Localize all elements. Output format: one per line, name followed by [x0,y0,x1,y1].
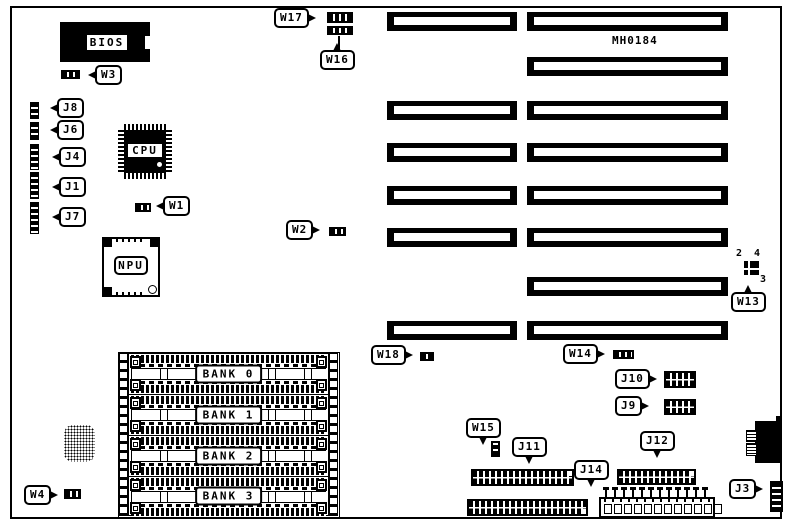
label-j11: J11 [512,437,547,457]
label-j14: J14 [574,460,609,480]
power-pin [702,487,708,497]
pointer-icon [587,479,595,487]
isa-slot-segment [527,101,728,120]
bios-chip-notch [145,36,150,49]
pointer-icon [479,437,487,445]
simm-latch-clip [316,379,327,391]
simm-latch-clip [316,479,327,491]
pointer-icon [50,126,58,134]
label-w3: W3 [95,65,122,85]
bank-edge-strip-left [119,353,128,516]
power-pin [630,487,636,497]
power-pin [612,487,618,497]
pointer-icon [405,351,413,359]
power-socket [664,504,672,514]
pointer-icon [333,43,341,51]
label-j1: J1 [59,177,86,197]
connector-j14 [467,499,588,516]
simm-latch-clip [316,356,327,368]
simm-latch-clip [130,356,141,368]
npu-label: NPU [114,256,148,275]
power-socket [684,504,692,514]
simm-latch-clip [316,461,327,473]
simm-pins [131,478,326,486]
jumper-w17 [327,12,353,23]
simm-pins [131,355,326,363]
jumper-w3 [61,70,80,79]
isa-slot-segment [527,277,728,296]
power-pin [639,487,645,497]
isa-slot-segment [387,12,517,31]
pointer-icon [52,183,60,191]
jumper-w18 [420,352,434,361]
simm-latch-clip [130,397,141,409]
keyboard-connector [755,421,782,463]
bank0-label: BANK 0 [195,365,263,384]
connector-j11 [471,469,574,486]
simm-pins [131,385,326,393]
label-w18: W18 [371,345,406,365]
header-j4 [30,144,39,170]
npu-socket: NPU [102,237,160,297]
label-w13: W13 [731,292,766,312]
label-j8: J8 [57,98,84,118]
power-pin [675,487,681,497]
npu-corner [104,239,112,247]
header-j1 [30,172,39,199]
npu-pin1-ring [148,285,157,294]
pointer-icon [653,450,661,458]
power-connector [599,487,715,518]
isa-slot-segment [527,186,728,205]
bios-chip-label: BIOS [87,35,127,50]
power-socket [634,504,642,514]
isa-slot-segment [527,12,728,31]
jumper-w2 [329,227,346,236]
power-socket [644,504,652,514]
isa-slot-segment [527,57,728,76]
simm-latch-clip [316,502,327,514]
motherboard-diagram: BIOS W3 J8 J6 J4 J1 J7 CPU W1 [0,0,791,529]
simm-bank-3: BANK 3 [128,476,329,516]
power-socket [674,504,682,514]
label-j12: J12 [640,431,675,451]
bios-chip: BIOS [60,22,150,62]
jumper-w4 [64,489,81,499]
simm-latch-clip [130,461,141,473]
cpu-chip: CPU [118,124,172,179]
jumper-w13-block [744,261,759,275]
cpu-pins-bottom [124,173,166,179]
isa-slot-segment [527,228,728,247]
jumper-w1 [135,203,151,212]
power-pin [621,487,627,497]
npu-ticks-top [116,239,146,242]
pointer-icon [744,285,752,293]
isa-slot-segment [387,101,517,120]
header-j6 [30,122,39,140]
simm-latch-clip [130,420,141,432]
simm-pins [131,467,326,475]
npu-corner [104,287,112,295]
bank3-label: BANK 3 [195,487,263,506]
label-w1: W1 [163,196,190,216]
pointer-icon [649,375,657,383]
label-j9: J9 [615,396,642,416]
simm-latch-clip [316,420,327,432]
cpu-pin1-dot [157,162,162,167]
simm-latch-clip [130,438,141,450]
model-number: MH0184 [612,34,658,47]
power-pin [648,487,654,497]
jumper-w16 [327,26,353,35]
header-j7 [30,202,39,234]
cpu-pins-right [166,130,172,173]
connector-j12 [617,469,696,485]
pointer-icon [88,71,96,79]
power-pin [684,487,690,497]
keyboard-connector-tab [746,430,757,442]
bank-edge-strip-right [329,353,338,516]
power-pin [603,487,609,497]
simm-latch-clip [316,397,327,409]
connector-j10 [664,371,696,388]
jumper-w15 [491,441,500,457]
power-socket [704,504,712,514]
bank2-label: BANK 2 [195,447,263,466]
power-socket [604,504,612,514]
power-socket [654,504,662,514]
label-w14: W14 [563,344,598,364]
label-j3: J3 [729,479,756,499]
connector-key-cell [568,471,572,476]
simm-pins [131,437,326,445]
keyboard-connector-step [776,416,782,422]
jumper-w14 [613,350,634,359]
simm-latch-clip [130,479,141,491]
pointer-icon [50,104,58,112]
speaker-component [64,425,95,462]
simm-latch-clip [130,379,141,391]
simm-pins [131,426,326,434]
power-socket [624,504,632,514]
bank1-label: BANK 1 [195,406,263,425]
power-connector-pins [603,487,708,497]
isa-slot-segment [387,321,517,340]
pointer-icon [525,456,533,464]
simm-latch-clip [130,502,141,514]
label-j6: J6 [57,120,84,140]
simm-bank-0: BANK 0 [128,353,329,395]
simm-bank-2: BANK 2 [128,435,329,477]
label-j10: J10 [615,369,650,389]
header-j8 [30,102,39,119]
pointer-icon [50,491,58,499]
power-connector-body [599,497,715,518]
w13-pin3-number: 3 [760,274,766,285]
pointer-icon [156,202,164,210]
power-socket [614,504,622,514]
pointer-icon [755,485,763,493]
simm-latch-clip [316,438,327,450]
power-pin [666,487,672,497]
isa-slot-segment [387,186,517,205]
npu-ticks-bottom [116,292,146,295]
simm-bank-1: BANK 1 [128,394,329,436]
cpu-label: CPU [128,144,162,157]
simm-pins [131,396,326,404]
isa-slot-segment [527,143,728,162]
label-w17: W17 [274,8,309,28]
label-j4: J4 [59,147,86,167]
npu-corner [150,239,158,247]
connector-key-cell [690,471,694,476]
power-socket [714,504,722,514]
pointer-icon [308,14,316,22]
label-w2: W2 [286,220,313,240]
power-pin [693,487,699,497]
w13-pin2-number: 2 [736,248,742,259]
pointer-icon [52,213,60,221]
keyboard-connector-tab [746,443,757,456]
simm-pins [131,508,326,516]
isa-slot-segment [527,321,728,340]
w13-pin4-number: 4 [754,248,760,259]
pointer-icon [52,153,60,161]
isa-slot-segment [387,143,517,162]
pointer-icon [312,226,320,234]
power-pin [657,487,663,497]
label-j7: J7 [59,207,86,227]
isa-slot-segment [387,228,517,247]
connector-j9 [664,399,696,415]
pointer-icon [597,350,605,358]
label-w15: W15 [466,418,501,438]
pointer-icon [641,402,649,410]
label-w4: W4 [24,485,51,505]
power-connector-sockets [604,504,722,514]
power-socket [694,504,702,514]
header-j3 [770,481,783,512]
connector-key-cell [582,509,586,514]
label-w16: W16 [320,50,355,70]
